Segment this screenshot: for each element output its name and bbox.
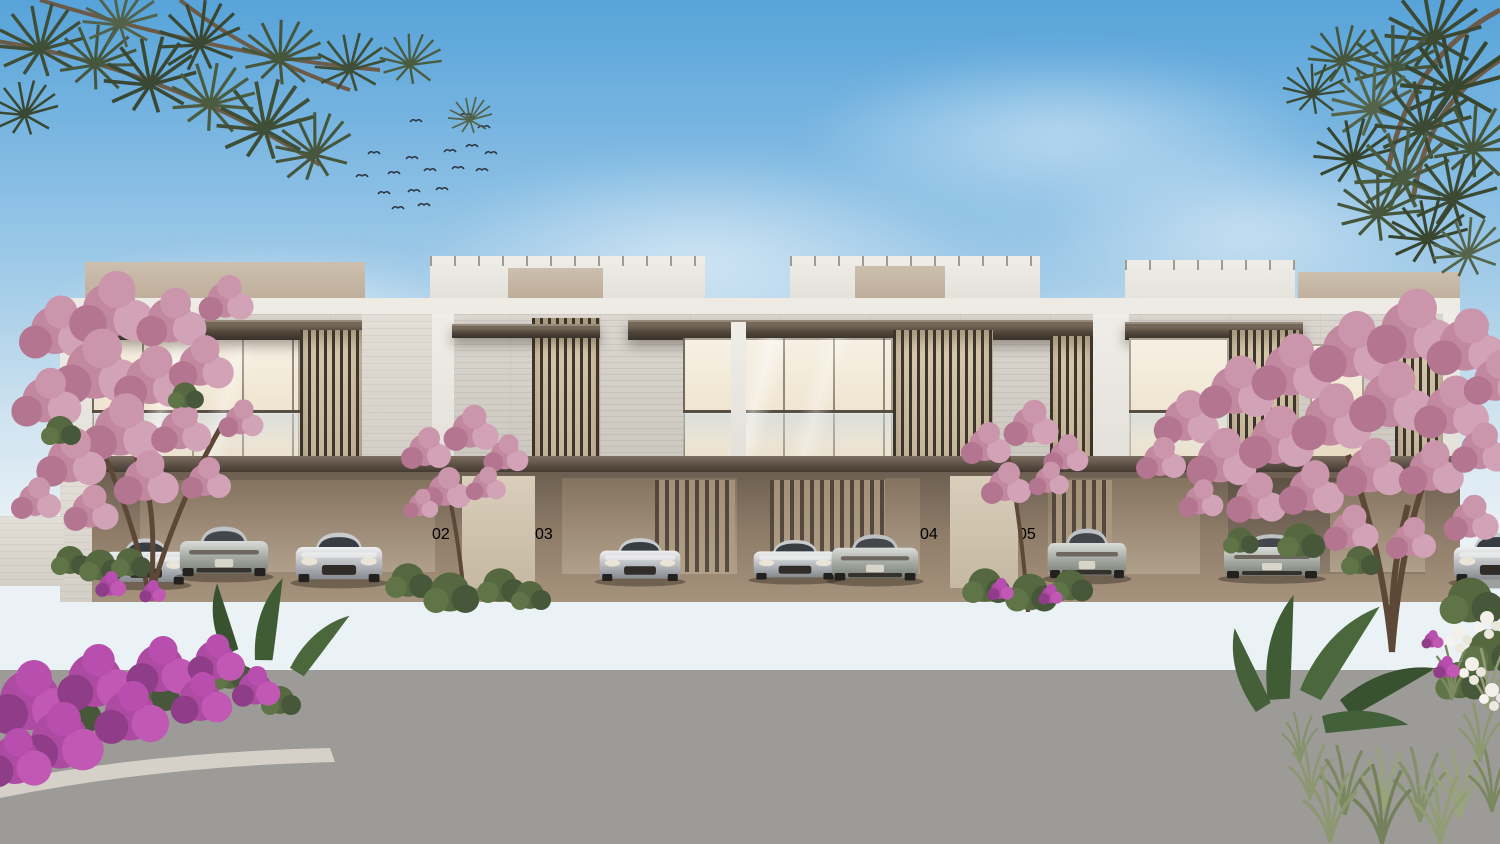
pine-needles bbox=[0, 0, 492, 188]
pine-tree-top-right bbox=[1248, 0, 1500, 340]
pine-needles bbox=[1280, 0, 1500, 282]
banana-plants-right bbox=[1202, 595, 1435, 761]
exterior-render-scene: 02 03 04 05 bbox=[0, 0, 1500, 844]
pine-branches-top-left bbox=[0, 0, 580, 300]
